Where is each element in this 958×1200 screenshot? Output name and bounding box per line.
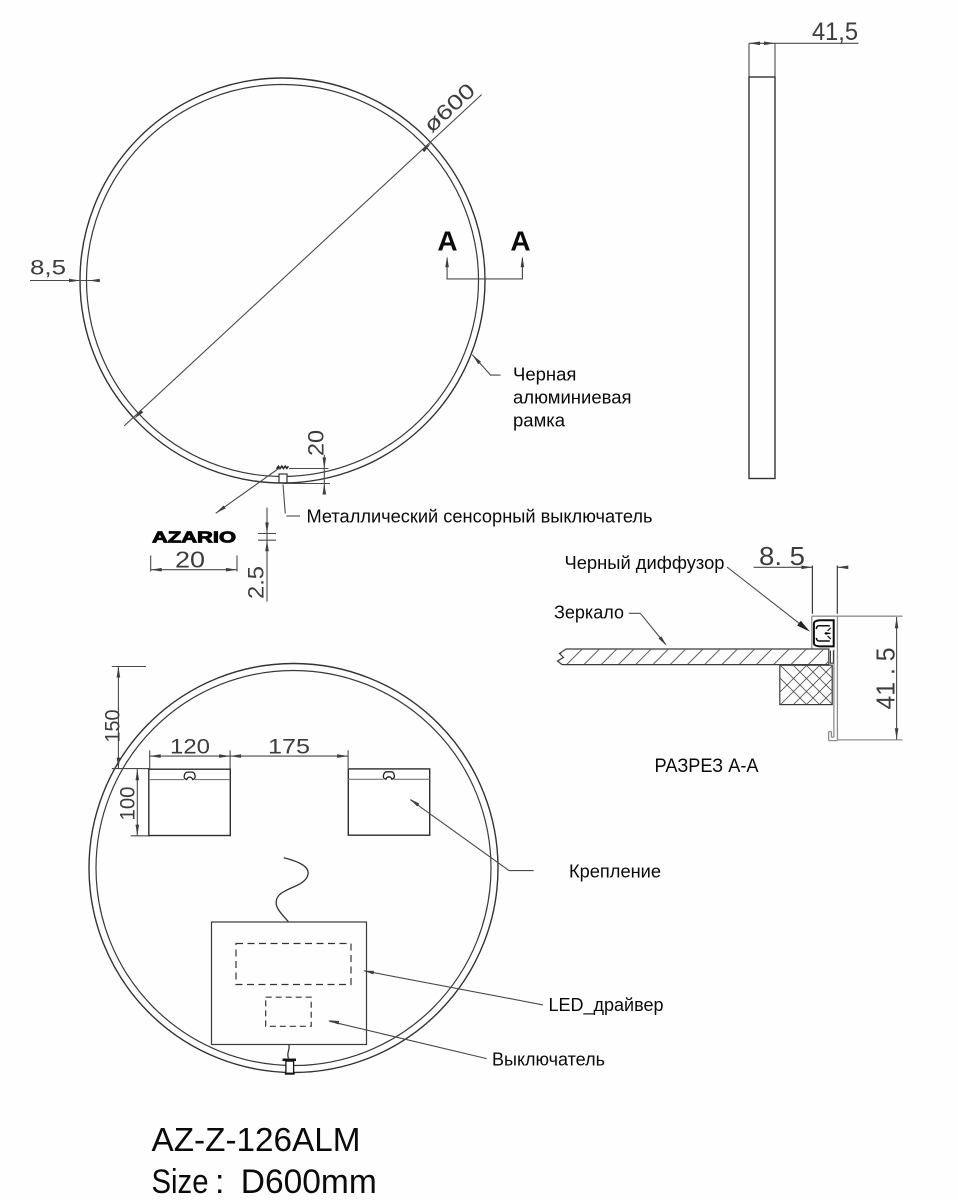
- svg-text:Металлический сенсорный выключ: Металлический сенсорный выключатель: [307, 506, 653, 527]
- svg-text:100: 100: [116, 786, 140, 820]
- svg-text:Выключатель: Выключатель: [492, 1049, 605, 1070]
- svg-text:AZARIO: AZARIO: [152, 530, 236, 547]
- svg-text:РАЗРЕЗ А-А: РАЗРЕЗ А-А: [655, 755, 759, 777]
- svg-text:LED_драйвер: LED_драйвер: [549, 994, 664, 1016]
- svg-text:20: 20: [175, 547, 205, 573]
- svg-text:2.5: 2.5: [244, 566, 269, 599]
- svg-text:A: A: [437, 226, 457, 257]
- svg-text:150: 150: [101, 709, 125, 742]
- svg-text:AZ-Z-126ALM: AZ-Z-126ALM: [152, 1121, 361, 1158]
- svg-text:41,5: 41,5: [812, 18, 858, 46]
- svg-text:175: 175: [268, 735, 310, 759]
- svg-text:120: 120: [170, 735, 210, 759]
- svg-text:Черный диффузор: Черный диффузор: [565, 552, 725, 573]
- svg-text:8. 5: 8. 5: [759, 541, 805, 571]
- svg-text:Зеркало: Зеркало: [554, 602, 624, 623]
- svg-text:8,5: 8,5: [30, 257, 66, 280]
- svg-text:A: A: [510, 226, 530, 257]
- svg-text:20: 20: [304, 430, 329, 456]
- svg-text:41 . 5: 41 . 5: [871, 648, 901, 710]
- svg-text:Size:D600mm: Size:D600mm: [152, 1163, 377, 1200]
- svg-text:Крепление: Крепление: [569, 861, 661, 882]
